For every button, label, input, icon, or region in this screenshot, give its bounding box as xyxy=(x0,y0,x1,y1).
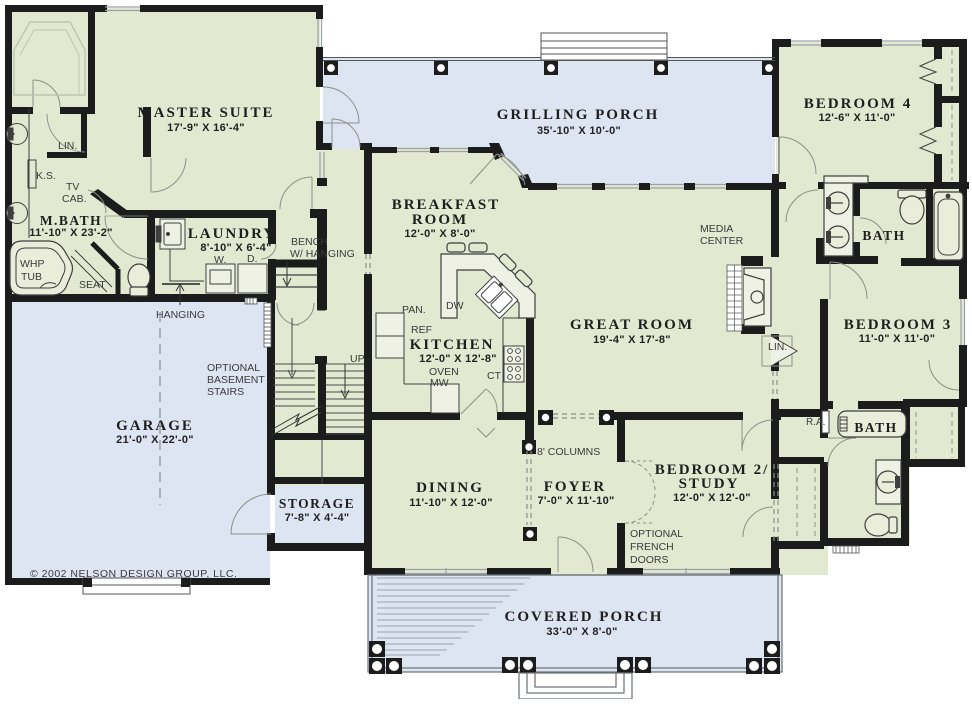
svg-text:K.S.: K.S. xyxy=(36,170,56,182)
svg-text:UP: UP xyxy=(350,353,365,365)
svg-text:MW: MW xyxy=(430,377,449,389)
svg-text:11'-0" X 11'-0": 11'-0" X 11'-0" xyxy=(859,333,935,345)
svg-text:19'-4" X 17'-8": 19'-4" X 17'-8" xyxy=(593,334,671,346)
svg-text:COVERED PORCH: COVERED PORCH xyxy=(505,609,664,625)
svg-text:LAUNDRY: LAUNDRY xyxy=(188,226,276,242)
svg-text:GREAT ROOM: GREAT ROOM xyxy=(570,317,694,333)
svg-text:DW: DW xyxy=(446,300,464,312)
svg-text:D.: D. xyxy=(247,253,258,265)
svg-text:BENCH: BENCH xyxy=(291,236,328,248)
svg-text:GARAGE: GARAGE xyxy=(116,418,194,434)
svg-text:PAN.: PAN. xyxy=(402,304,426,316)
svg-text:LIN.: LIN. xyxy=(58,140,77,152)
svg-text:CT: CT xyxy=(487,370,502,382)
svg-text:35'-10" X 10'-0": 35'-10" X 10'-0" xyxy=(537,125,621,137)
svg-text:11'-10" X 23'-2": 11'-10" X 23'-2" xyxy=(29,227,112,239)
svg-text:GRILLING PORCH: GRILLING PORCH xyxy=(497,107,660,123)
svg-text:LIN.: LIN. xyxy=(768,341,787,353)
svg-text:DOORS: DOORS xyxy=(630,554,669,566)
svg-text:TUB: TUB xyxy=(21,271,42,283)
svg-text:12'-6" X 11'-0": 12'-6" X 11'-0" xyxy=(818,112,895,124)
svg-text:WHP: WHP xyxy=(20,258,45,270)
svg-text:STUDY: STUDY xyxy=(679,476,740,492)
svg-text:M.BATH: M.BATH xyxy=(40,213,102,228)
svg-text:DINING: DINING xyxy=(416,480,484,496)
svg-text:MEDIA: MEDIA xyxy=(700,223,733,235)
svg-text:W.: W. xyxy=(214,254,226,266)
svg-text:BATH: BATH xyxy=(862,228,905,243)
svg-text:17'-9" X 16'-4": 17'-9" X 16'-4" xyxy=(167,122,245,134)
svg-text:© 2002 NELSON DESIGN GROUP, LL: © 2002 NELSON DESIGN GROUP, LLC. xyxy=(30,568,237,580)
svg-text:BEDROOM 3: BEDROOM 3 xyxy=(844,317,952,333)
svg-text:MASTER SUITE: MASTER SUITE xyxy=(138,105,275,121)
svg-text:12'-0" X 8'-0": 12'-0" X 8'-0" xyxy=(404,228,475,240)
svg-text:FOYER: FOYER xyxy=(544,479,607,495)
svg-text:33'-0" X 8'-0": 33'-0" X 8'-0" xyxy=(546,626,617,638)
svg-text:TV: TV xyxy=(66,181,79,193)
svg-text:FRENCH: FRENCH xyxy=(630,541,674,553)
svg-text:12'-0" X 12'-0": 12'-0" X 12'-0" xyxy=(673,492,751,504)
svg-text:REF: REF xyxy=(411,324,432,336)
svg-text:7'-8" X 4'-4": 7'-8" X 4'-4" xyxy=(285,512,350,524)
svg-text:BEDROOM 4: BEDROOM 4 xyxy=(804,96,912,112)
svg-text:12'-0" X 12'-8": 12'-0" X 12'-8" xyxy=(419,353,497,365)
svg-text:ROOM: ROOM xyxy=(412,212,468,228)
svg-text:11'-10" X 12'-0": 11'-10" X 12'-0" xyxy=(409,497,492,509)
svg-text:HANGING: HANGING xyxy=(156,309,205,321)
svg-text:OPTIONAL: OPTIONAL xyxy=(207,362,260,374)
svg-text:21'-0" X 22'-0": 21'-0" X 22'-0" xyxy=(116,434,194,446)
svg-text:BASEMENT: BASEMENT xyxy=(207,374,265,386)
svg-text:7'-0" X 11'-10": 7'-0" X 11'-10" xyxy=(537,495,614,507)
svg-text:BREAKFAST: BREAKFAST xyxy=(392,197,501,213)
svg-text:OPTIONAL: OPTIONAL xyxy=(630,528,683,540)
svg-text:R.A.: R.A. xyxy=(806,417,825,428)
svg-text:CENTER: CENTER xyxy=(700,235,744,247)
svg-text:8' COLUMNS: 8' COLUMNS xyxy=(537,446,600,458)
svg-text:KITCHEN: KITCHEN xyxy=(410,337,495,353)
svg-text:STORAGE: STORAGE xyxy=(279,496,355,511)
svg-text:8'-10" X 6'-4": 8'-10" X 6'-4" xyxy=(200,242,271,254)
svg-text:CAB.: CAB. xyxy=(62,193,87,205)
svg-text:W/ HANGING: W/ HANGING xyxy=(290,248,355,260)
svg-text:SEAT: SEAT xyxy=(79,279,106,291)
svg-text:STAIRS: STAIRS xyxy=(207,386,244,398)
svg-text:BATH: BATH xyxy=(854,420,897,435)
